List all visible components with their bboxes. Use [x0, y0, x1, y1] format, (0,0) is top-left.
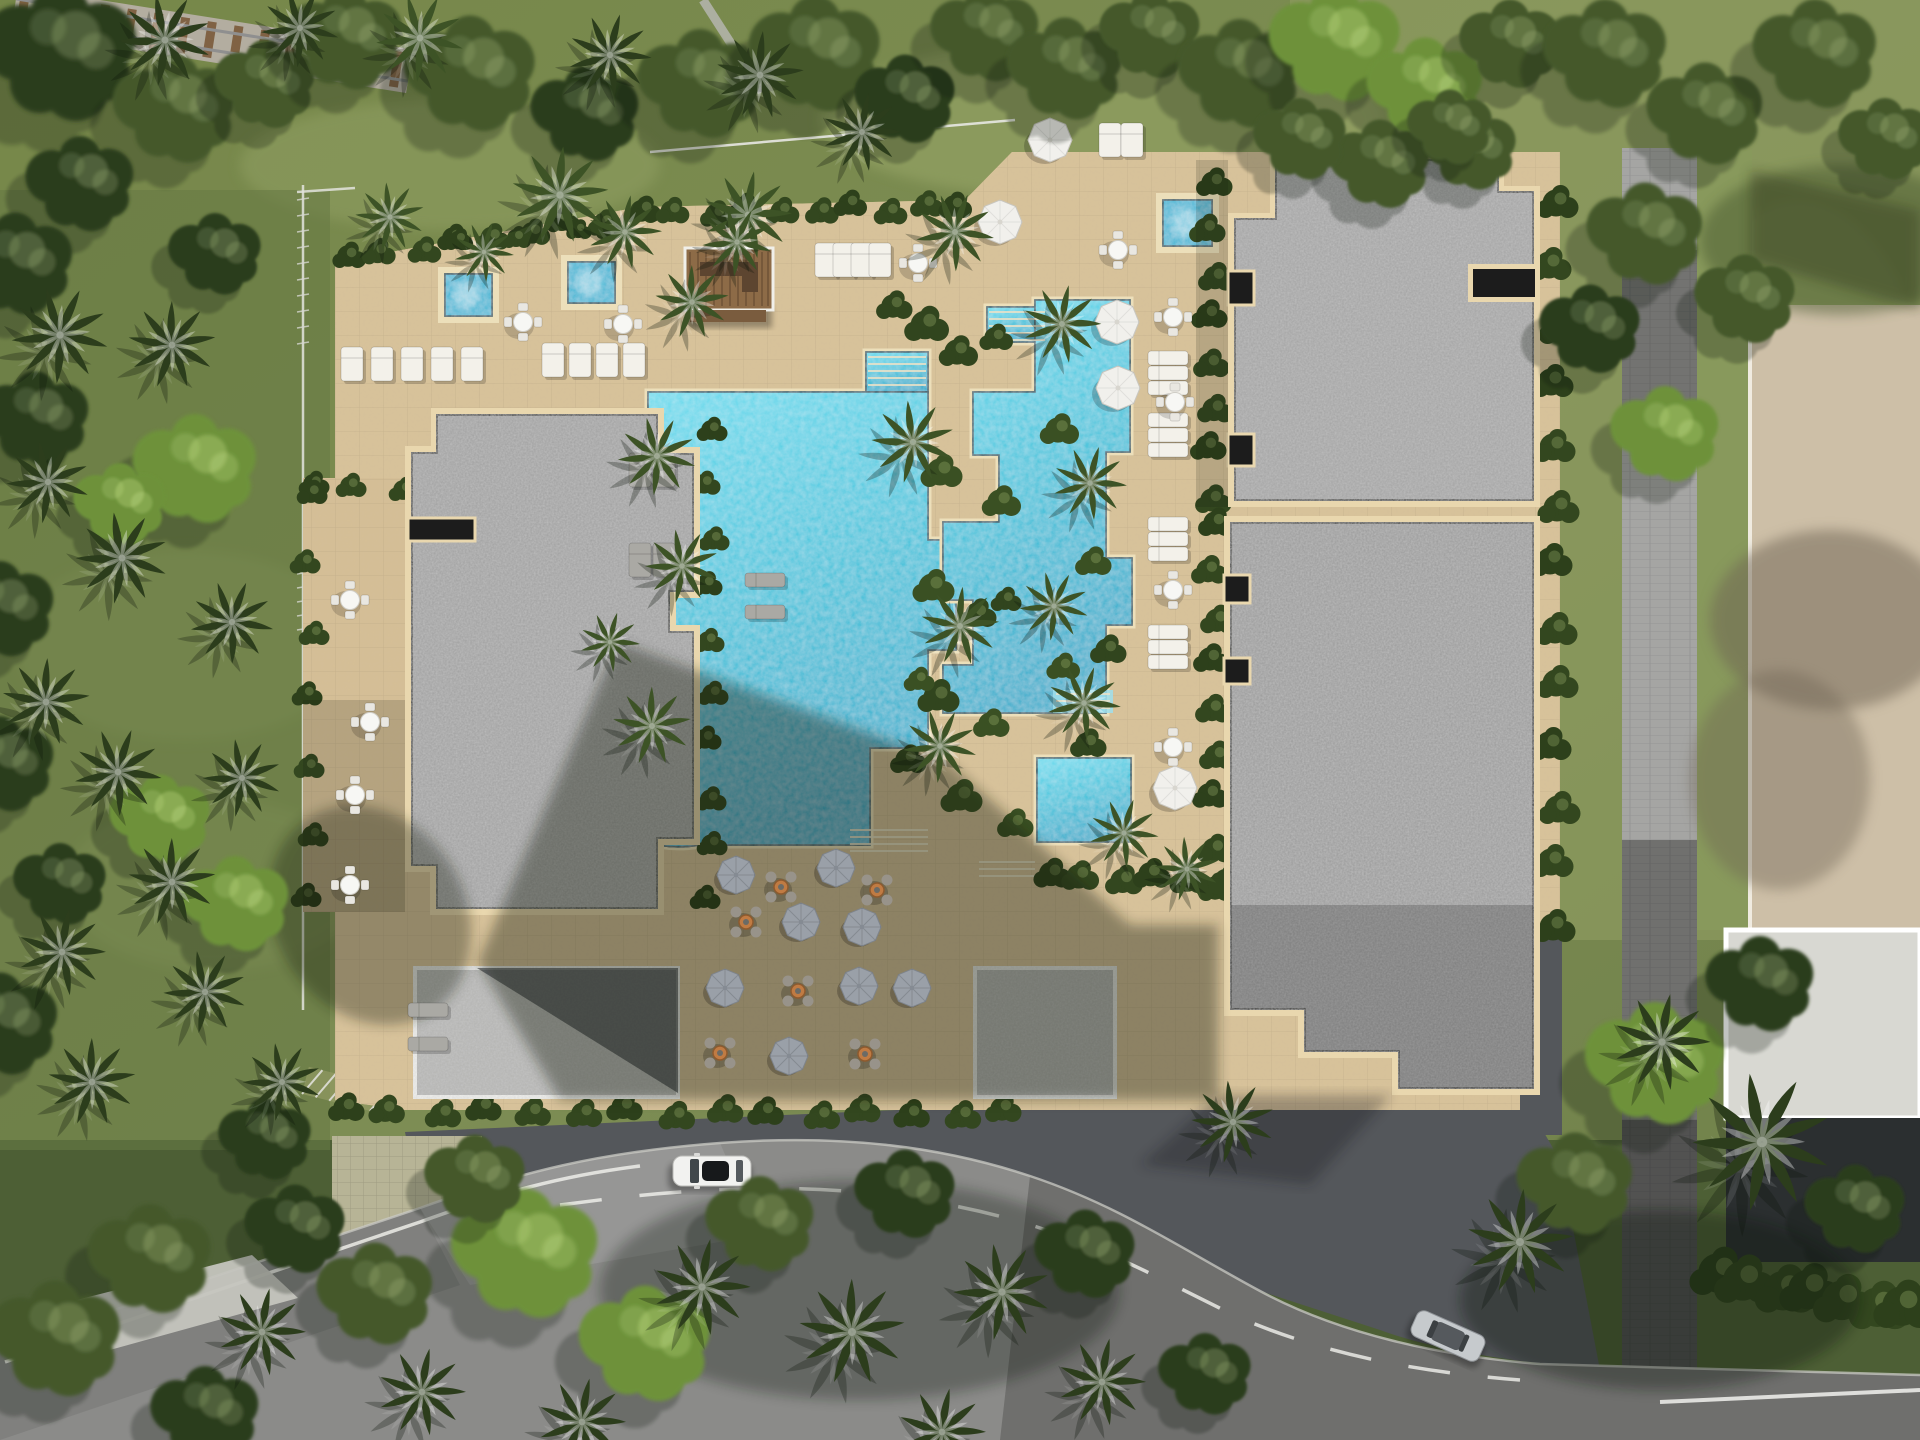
sun-lounger	[745, 605, 788, 622]
sun-lounger	[1148, 428, 1191, 445]
sun-lounger	[371, 347, 396, 384]
sun-lounger	[1148, 532, 1191, 549]
sun-lounger	[1148, 351, 1191, 368]
sun-lounger	[745, 573, 788, 590]
sun-lounger	[431, 347, 456, 384]
site-plan-svg	[0, 0, 1920, 1440]
sun-lounger	[542, 343, 567, 380]
sun-lounger	[1148, 625, 1191, 642]
spa-pool	[441, 270, 496, 320]
sun-lounger	[629, 543, 654, 580]
sun-lounger	[1099, 123, 1124, 160]
sun-lounger	[341, 347, 366, 384]
building-southeast	[1224, 516, 1540, 1095]
sun-lounger	[408, 1037, 451, 1054]
suv-white	[668, 1153, 752, 1192]
sun-lounger	[408, 1003, 451, 1020]
sun-lounger	[1148, 517, 1191, 534]
spa-pool	[564, 258, 619, 307]
sun-lounger	[569, 343, 594, 380]
sun-lounger	[869, 243, 894, 280]
sun-lounger	[461, 347, 486, 384]
aerial-resort-render	[0, 0, 1920, 1440]
sun-lounger	[1148, 655, 1191, 672]
sun-lounger	[596, 343, 621, 380]
sun-lounger	[1148, 640, 1191, 657]
sun-lounger	[401, 347, 426, 384]
sun-lounger	[623, 343, 648, 380]
sun-lounger	[1148, 366, 1191, 383]
sun-lounger	[1121, 123, 1146, 160]
sun-lounger	[1148, 443, 1191, 460]
sun-lounger	[1148, 547, 1191, 564]
